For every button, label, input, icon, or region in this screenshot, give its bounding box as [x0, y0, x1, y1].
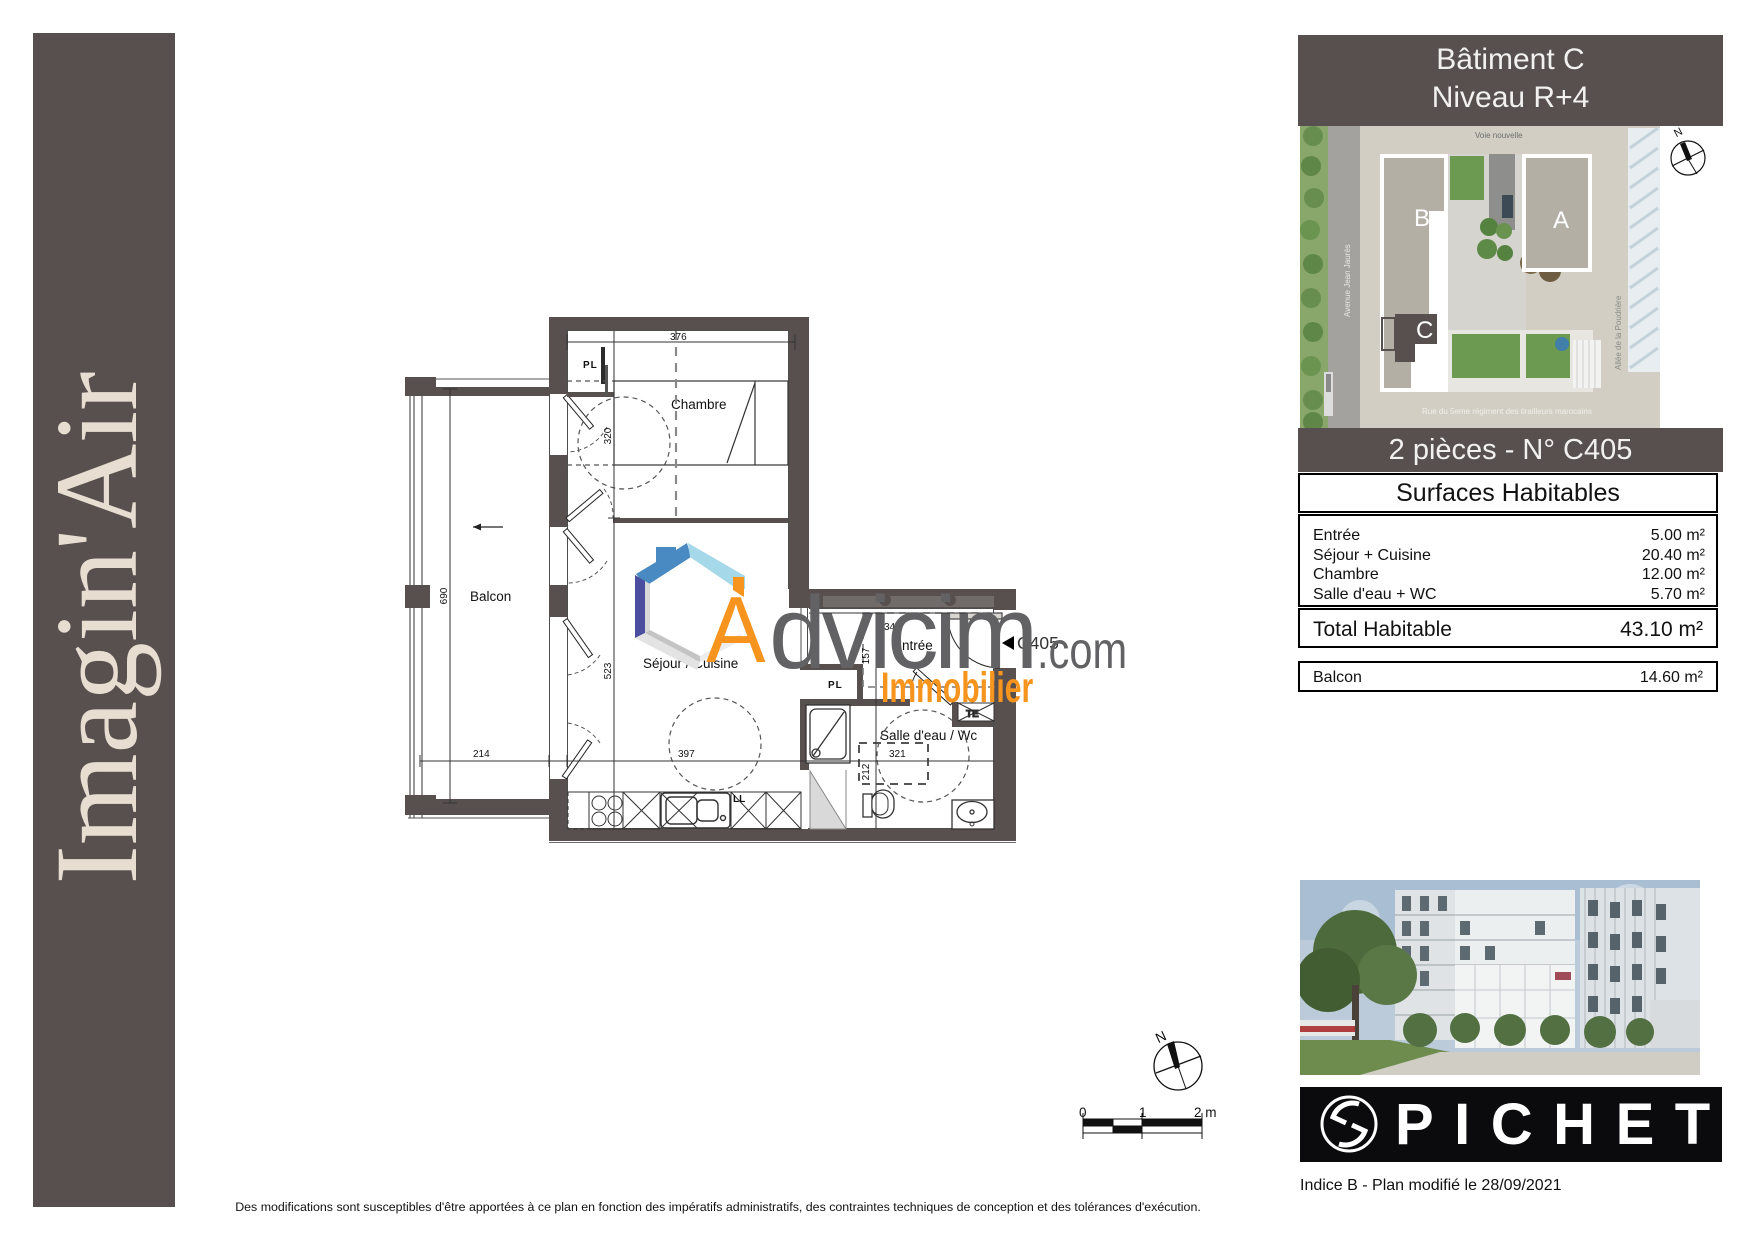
svg-text:A: A: [1553, 207, 1569, 234]
svg-text:Allée de la Poudrière: Allée de la Poudrière: [1614, 295, 1623, 370]
svg-text:N: N: [1672, 126, 1685, 140]
svg-text:320: 320: [603, 427, 614, 444]
svg-text:B: B: [1414, 205, 1430, 232]
svg-text:1: 1: [1139, 1105, 1147, 1120]
svg-text:C: C: [1416, 317, 1433, 344]
svg-text:A: A: [706, 578, 766, 683]
svg-text:376: 376: [670, 332, 687, 343]
svg-text:212: 212: [861, 763, 872, 780]
svg-text:321: 321: [889, 749, 906, 760]
svg-text:0: 0: [1079, 1105, 1087, 1120]
svg-text:PL: PL: [583, 360, 598, 371]
svg-text:Rue du 5eme régiment des tirai: Rue du 5eme régiment des tirailleurs mar…: [1422, 407, 1592, 416]
svg-text:523: 523: [603, 662, 614, 679]
svg-text:Balcon: Balcon: [470, 589, 511, 604]
svg-text:N: N: [1153, 1027, 1169, 1046]
svg-text:LL: LL: [733, 794, 745, 805]
svg-text:214: 214: [473, 749, 490, 760]
svg-text:690: 690: [439, 587, 450, 604]
svg-text:Salle d'eau / Wc: Salle d'eau / Wc: [880, 728, 977, 743]
svg-text:Immobilier: Immobilier: [881, 663, 1033, 712]
svg-text:397: 397: [678, 749, 695, 760]
svg-text:.com: .com: [1037, 621, 1127, 680]
svg-text:PICHET: PICHET: [1395, 1092, 1722, 1157]
svg-text:Voie nouvelle: Voie nouvelle: [1475, 131, 1523, 140]
svg-text:2 m: 2 m: [1194, 1105, 1217, 1120]
svg-text:Chambre: Chambre: [671, 397, 727, 412]
svg-text:Avenue Jean Jaurès: Avenue Jean Jaurès: [1343, 244, 1352, 317]
